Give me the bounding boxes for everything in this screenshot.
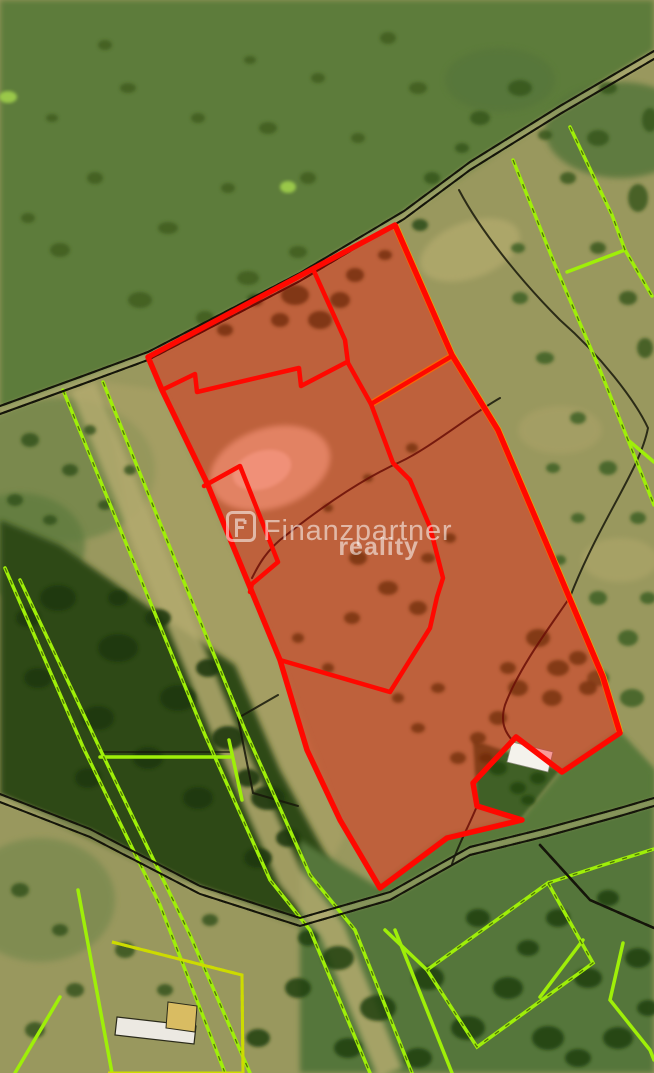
tree-blob — [7, 494, 23, 506]
tree-blob — [52, 924, 68, 936]
tree-blob — [560, 172, 576, 184]
tree-blob — [212, 726, 244, 750]
tree-blob — [221, 183, 235, 193]
tree-blob — [311, 73, 325, 83]
tree-blob — [62, 464, 78, 476]
tree-blob — [571, 513, 585, 523]
tree-blob — [603, 1027, 633, 1049]
tree-blob — [158, 222, 178, 234]
tree-blob — [87, 172, 103, 184]
tree-blob — [574, 968, 602, 988]
tree-blob — [46, 114, 58, 122]
tree-blob — [466, 909, 490, 927]
tree-blob — [24, 668, 52, 688]
tree-blob — [599, 461, 617, 475]
tree-blob — [512, 292, 528, 304]
tree-blob — [183, 787, 213, 809]
tree-blob — [108, 590, 128, 606]
tree-blob — [244, 56, 256, 64]
tree-blob — [455, 143, 469, 153]
tree-blob — [451, 1016, 485, 1040]
tree-blob — [50, 243, 70, 257]
tree-blob — [589, 591, 607, 605]
tree-blob — [590, 242, 606, 254]
building-roof-tan — [166, 1002, 197, 1032]
tree-blob — [351, 133, 365, 143]
tree-blob — [120, 83, 136, 93]
tree-blob — [470, 111, 490, 125]
tree-blob — [11, 883, 29, 897]
tree-blob — [237, 271, 259, 285]
tree-blob — [157, 984, 173, 996]
map-viewport[interactable]: Finanzpartner reality — [0, 0, 654, 1073]
tree-blob — [620, 689, 644, 707]
tree-blob — [21, 433, 39, 447]
tree-blob — [511, 243, 525, 253]
tree-blob — [637, 338, 653, 358]
brand-sub: reality — [338, 533, 419, 561]
tree-blob — [40, 585, 76, 611]
tree-blob — [21, 213, 35, 223]
tree-blob — [98, 40, 112, 50]
tree-blob — [246, 1029, 270, 1047]
tree-blob — [409, 82, 427, 94]
tree-blob — [124, 465, 136, 475]
tree-blob — [619, 291, 637, 305]
tree-blob — [630, 512, 646, 524]
tree-blob — [521, 795, 535, 805]
tree-blob — [285, 978, 311, 998]
tree-blob — [412, 219, 428, 231]
tree-blob — [625, 948, 651, 968]
tree-blob — [424, 172, 440, 184]
tree-blob — [628, 184, 648, 212]
tree-blob — [191, 113, 205, 123]
tree-blob — [66, 983, 84, 997]
tree-blob — [599, 82, 617, 94]
tree-blob — [98, 634, 138, 662]
tree-blob — [508, 80, 532, 96]
tree-blob — [546, 463, 560, 473]
map-canvas[interactable]: Finanzpartner reality — [0, 0, 654, 1073]
tree-blob — [536, 352, 554, 364]
tree-blob — [300, 172, 316, 184]
tree-blob — [493, 977, 523, 999]
tree-blob — [587, 130, 609, 146]
tree-blob — [538, 130, 552, 140]
tree-blob — [532, 1026, 564, 1050]
tree-blob — [570, 412, 586, 424]
tree-blob — [618, 630, 638, 646]
tree-blob — [517, 940, 539, 956]
tree-blob — [259, 122, 277, 134]
tree-blob — [380, 32, 396, 44]
tree-blob — [128, 292, 152, 308]
tree-blob — [84, 425, 96, 435]
tree-blob — [565, 1049, 591, 1067]
tree-blob — [43, 515, 57, 525]
tree-blob — [530, 772, 546, 784]
tree-blob — [202, 914, 218, 926]
tree-blob — [510, 782, 526, 794]
tree-blob — [289, 246, 307, 258]
